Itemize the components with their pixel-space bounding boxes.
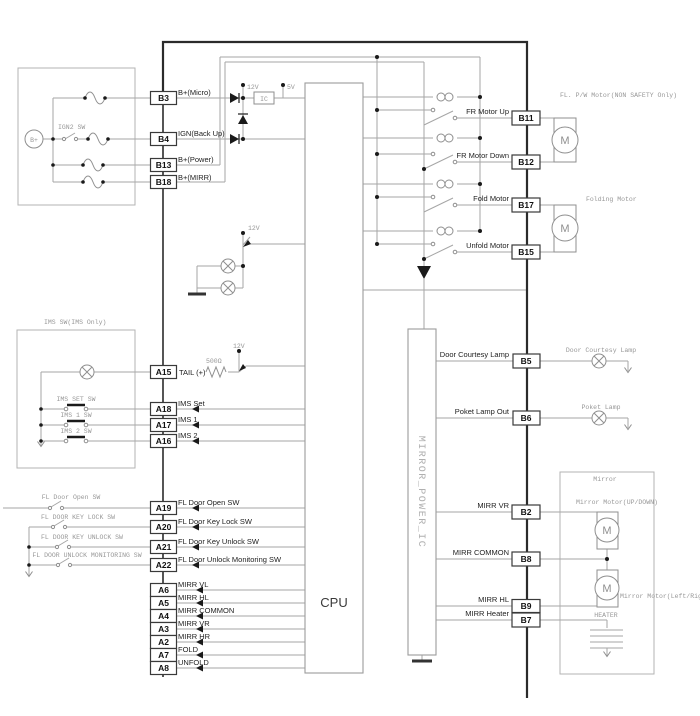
fl-door-open-sw-label: FL Door Open SW: [42, 494, 101, 501]
fl-door-unlock-monitoring-sw-label: FL DOOR UNLOCK MONITORING SW: [32, 552, 141, 559]
folding-motor-icon: M: [552, 205, 578, 252]
svg-text:B8: B8: [521, 554, 532, 564]
connector-B2: B2: [512, 505, 540, 519]
signal-label: FR Motor Down: [456, 151, 509, 160]
lamp-icon: [80, 365, 94, 379]
door-courtesy-lamp-label: Door Courtesy Lamp: [566, 347, 636, 354]
resistor-icon: [206, 367, 226, 377]
signal-label: MIRR HL: [178, 593, 209, 602]
signal-label: Fold Motor: [473, 194, 509, 203]
cpu-block: CPU: [305, 83, 363, 673]
heater-label: HEATER: [594, 612, 618, 619]
ign2-sw-label: IGN2 SW: [58, 124, 85, 131]
cpu-label: CPU: [320, 595, 347, 610]
signal-label: B+(Power): [178, 155, 214, 164]
signal-label: Door Courtesy Lamp: [440, 350, 509, 359]
signal-label: FL Door Unlock Monitoring SW: [178, 555, 282, 564]
signal-label: FL Door Key Lock SW: [178, 517, 253, 526]
svg-text:M: M: [602, 525, 611, 537]
connector-A18: A18: [151, 403, 177, 416]
signal-label: UNFOLD: [178, 658, 209, 667]
v12-label: 12V: [248, 225, 260, 232]
svg-text:A6: A6: [158, 585, 169, 595]
svg-text:B3: B3: [158, 93, 169, 103]
v12-label: 12V: [247, 84, 259, 91]
mirror-motor-leftright-label: Mirror Motor(Left/Right): [620, 593, 700, 600]
relay-coil-icons: [437, 93, 453, 235]
connector-B18: B18: [151, 176, 177, 189]
connector-B7: B7: [512, 613, 540, 627]
connector-A3: A3: [151, 623, 177, 636]
svg-text:B18: B18: [156, 177, 172, 187]
svg-text:A15: A15: [156, 367, 172, 377]
door-courtesy-lamp-icon: [592, 354, 606, 368]
signal-label: IMS 2: [178, 431, 198, 440]
svg-text:B9: B9: [521, 601, 532, 611]
mirror-motor-updown-icon: M: [595, 512, 619, 549]
connector-B13: B13: [151, 159, 177, 172]
signal-label: IMS 1: [178, 415, 198, 424]
signal-label: FL Door Open SW: [178, 498, 240, 507]
signal-label: MIRR VR: [477, 501, 509, 510]
connector-B5: B5: [513, 354, 540, 368]
lamp-icon: [221, 259, 235, 273]
signal-label: MIRR VL: [178, 580, 208, 589]
signal-label: Poket Lamp Out: [455, 407, 510, 416]
svg-text:A16: A16: [156, 436, 172, 446]
connector-B17: B17: [512, 198, 540, 212]
connector-B9: B9: [512, 600, 540, 613]
power-diode-icon: [417, 266, 431, 279]
connector-A20: A20: [151, 521, 177, 534]
poket-lamp-label: Poket Lamp: [581, 404, 620, 411]
svg-text:B7: B7: [521, 615, 532, 625]
signal-label: MIRR VR: [178, 619, 210, 628]
svg-text:M: M: [560, 223, 569, 235]
ic-block: IC: [254, 92, 274, 104]
svg-text:B6: B6: [521, 413, 532, 423]
connector-B8: B8: [512, 552, 540, 566]
svg-text:B5: B5: [521, 356, 532, 366]
fl-door-key-unlock-sw-label: FL DOOR KEY UNLOCK SW: [41, 534, 123, 541]
fl-pw-motor-label: FL. P/W Motor(NON SAFETY Only): [560, 92, 677, 99]
connector-B12: B12: [512, 155, 540, 169]
connector-A8: A8: [151, 662, 177, 675]
svg-text:A22: A22: [156, 560, 172, 570]
ims-set-sw-label: IMS SET SW: [56, 396, 95, 403]
signal-label: B+(Micro): [178, 88, 211, 97]
signal-label: MIRR COMMON: [453, 548, 509, 557]
svg-text:B13: B13: [156, 160, 172, 170]
left-signal-labels: B+(Micro) IGN(Back Up) B+(Power) B+(MIRR…: [178, 88, 282, 667]
svg-text:A3: A3: [158, 624, 169, 634]
ims-1-sw-label: IMS 1 SW: [60, 412, 91, 419]
svg-text:A4: A4: [158, 611, 169, 621]
mirror-power-ic-label: MIRROR_POWER_IC: [415, 436, 426, 549]
connector-A6: A6: [151, 584, 177, 597]
schematic-canvas: CPU MIRROR_POWER_IC: [0, 0, 700, 716]
battery-icon: B+: [25, 130, 43, 148]
svg-text:A7: A7: [158, 650, 169, 660]
connector-A4: A4: [151, 610, 177, 623]
fl-door-key-lock-sw-label: FL DOOR KEY LOCK SW: [41, 514, 115, 521]
connector-B3: B3: [151, 92, 177, 105]
svg-text:B17: B17: [518, 200, 534, 210]
folding-motor-label: Folding Motor: [586, 196, 637, 203]
mirror-motor-leftright-icon: M: [595, 570, 619, 607]
connector-B11: B11: [512, 111, 540, 125]
connector-A2: A2: [151, 636, 177, 649]
connector-B6: B6: [513, 411, 540, 425]
mirror-motor-updown-label: Mirror Motor(UP/DOWN): [576, 499, 658, 506]
ic-label: IC: [260, 96, 268, 103]
svg-text:A21: A21: [156, 542, 172, 552]
connector-A15: A15: [151, 366, 177, 379]
svg-text:A20: A20: [156, 522, 172, 532]
mirror-box-title: Mirror: [593, 476, 617, 483]
ims-box-title: IMS SW(IMS Only): [44, 319, 106, 326]
resistor-value-label: 500Ω: [206, 358, 222, 365]
mirror-power-ic-block: MIRROR_POWER_IC: [408, 329, 436, 661]
signal-label: MIRR HL: [478, 595, 509, 604]
mirror-power-wiring-diagram: CPU MIRROR_POWER_IC: [0, 0, 700, 716]
svg-text:B2: B2: [521, 507, 532, 517]
svg-text:B4: B4: [158, 134, 169, 144]
svg-text:B11: B11: [518, 113, 533, 123]
switch-contact-icons: [48, 108, 456, 566]
connector-A7: A7: [151, 649, 177, 662]
signal-label: FL Door Key Unlock SW: [178, 537, 260, 546]
lamp-icon: [221, 281, 235, 295]
svg-text:M: M: [560, 135, 569, 147]
signal-label: FR Motor Up: [466, 107, 509, 116]
connector-A17: A17: [151, 419, 177, 432]
signal-label: MIRR HR: [178, 632, 211, 641]
connector-A5: A5: [151, 597, 177, 610]
signal-label: B+(MIRR): [178, 173, 212, 182]
svg-text:A18: A18: [156, 404, 172, 414]
battery-label: B+: [30, 137, 38, 144]
connector-A21: A21: [151, 541, 177, 554]
signal-label: IMS Set: [178, 399, 206, 408]
ims-2-sw-label: IMS 2 SW: [60, 428, 91, 435]
connector-B4: B4: [151, 133, 177, 146]
signal-label: Unfold Motor: [466, 241, 509, 250]
fl-pw-motor-icon: M: [552, 118, 578, 162]
v12-label: 12V: [233, 343, 245, 350]
svg-text:A17: A17: [156, 420, 172, 430]
svg-text:A2: A2: [158, 637, 169, 647]
signal-label: MIRR COMMON: [178, 606, 234, 615]
v5-label: 5V: [287, 84, 295, 91]
svg-text:M: M: [602, 583, 611, 595]
signal-label: FOLD: [178, 645, 199, 654]
svg-text:A19: A19: [156, 503, 172, 513]
connector-A16: A16: [151, 435, 177, 448]
connector-B15: B15: [512, 245, 540, 259]
signal-label: TAIL (+): [179, 368, 206, 377]
svg-text:B12: B12: [518, 157, 534, 167]
connector-A22: A22: [151, 559, 177, 572]
svg-text:B15: B15: [518, 247, 534, 257]
svg-text:A8: A8: [158, 663, 169, 673]
connector-A19: A19: [151, 502, 177, 515]
signal-label: IGN(Back Up): [178, 129, 225, 138]
signal-label: MIRR Heater: [465, 609, 509, 618]
svg-text:A5: A5: [158, 598, 169, 608]
pocket-lamp-icon: [592, 411, 606, 425]
